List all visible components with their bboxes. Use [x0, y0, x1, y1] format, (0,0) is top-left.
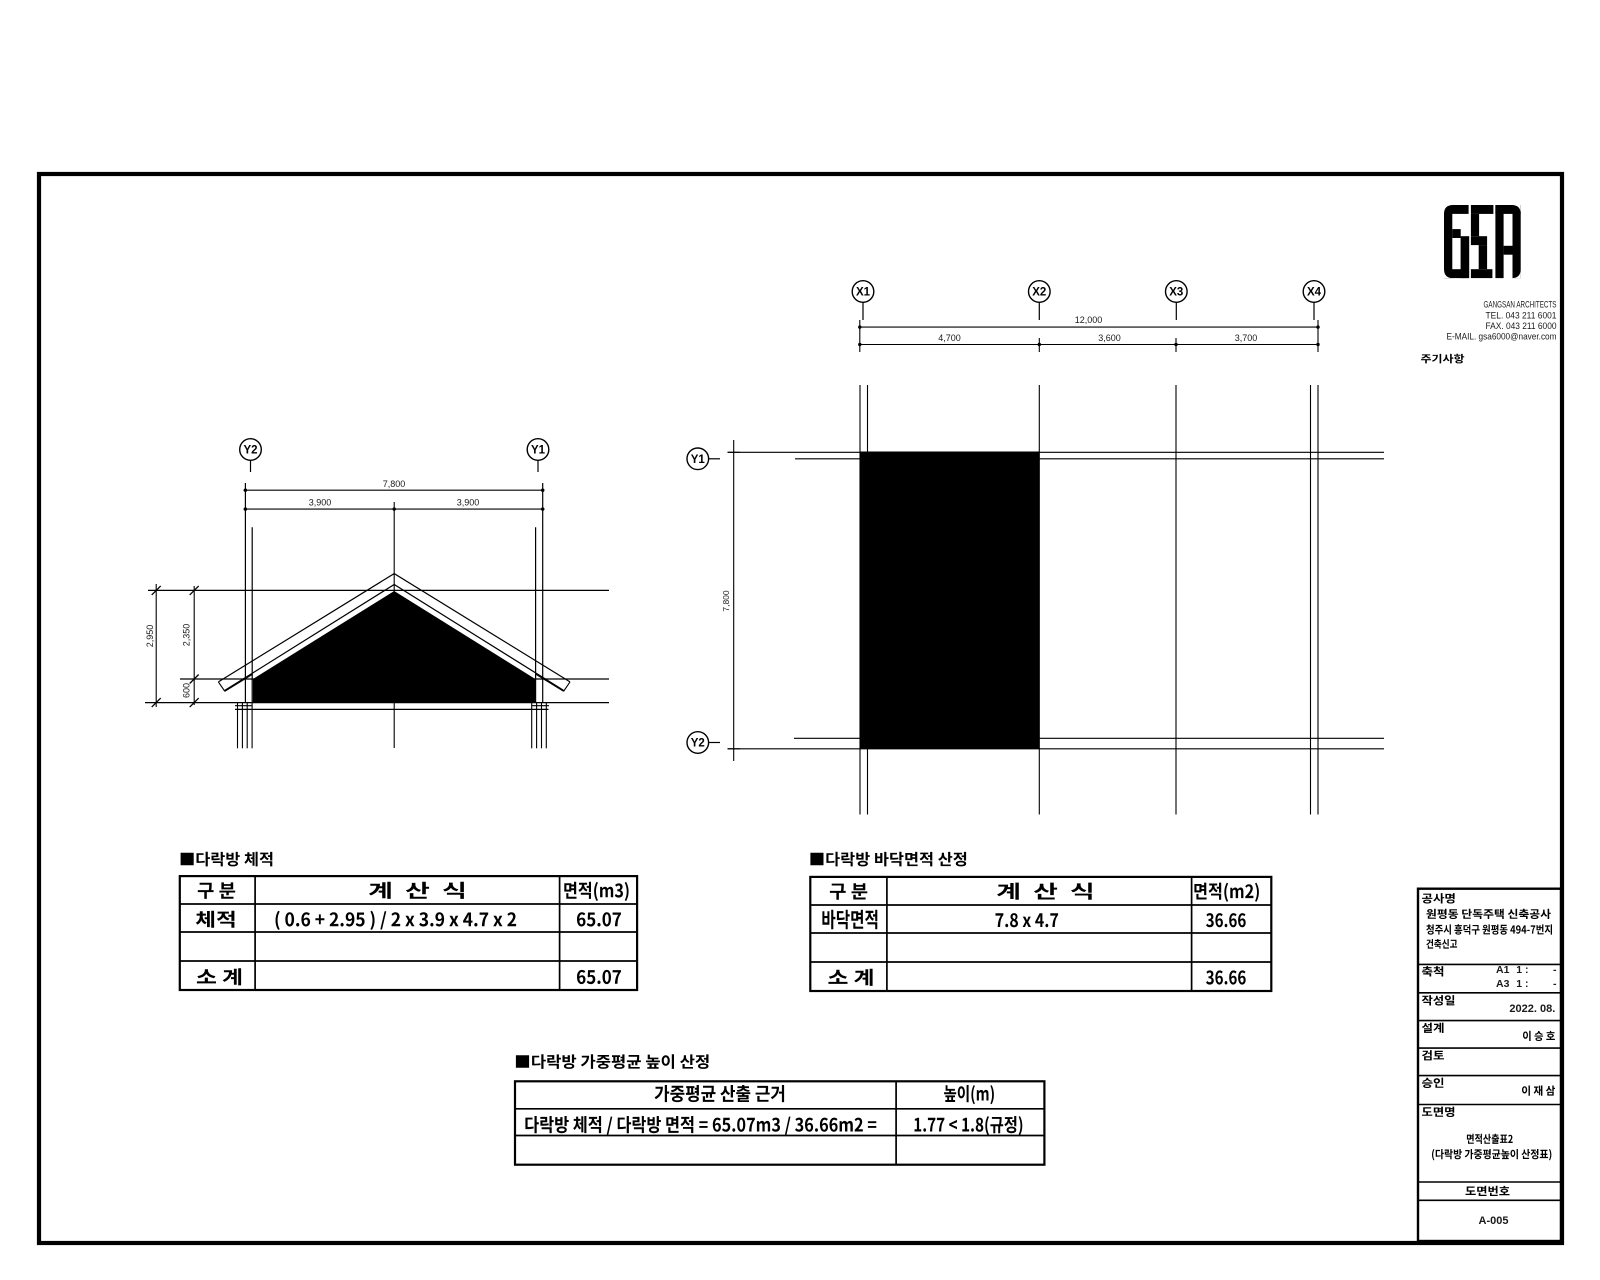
svg-text:12,000: 12,000	[1075, 315, 1103, 325]
svg-text:X4: X4	[1307, 287, 1322, 299]
svg-text:2,950: 2,950	[145, 625, 155, 648]
svg-text:-: -	[1553, 964, 1557, 976]
svg-text:GANGSAN ARCHITECTS: GANGSAN ARCHITECTS	[1484, 300, 1557, 310]
svg-text:4,700: 4,700	[938, 333, 961, 343]
svg-text:2,350: 2,350	[181, 624, 191, 647]
svg-text:600: 600	[182, 683, 192, 698]
svg-text:7,800: 7,800	[721, 590, 731, 612]
svg-text:TEL. 043 211 6001: TEL. 043 211 6001	[1486, 310, 1557, 321]
svg-text:3,600: 3,600	[1098, 333, 1121, 343]
svg-text:E-MAIL. gsa6000@naver.com: E-MAIL. gsa6000@naver.com	[1447, 332, 1557, 343]
svg-text:-: -	[1553, 978, 1557, 990]
svg-text:1 :: 1 :	[1516, 964, 1528, 976]
svg-text:3,900: 3,900	[309, 498, 332, 508]
svg-text:Y1: Y1	[531, 445, 546, 457]
svg-text:Y2: Y2	[691, 738, 705, 750]
svg-text:A3: A3	[1496, 978, 1510, 990]
svg-text:7,800: 7,800	[383, 479, 406, 489]
svg-text:1 :: 1 :	[1516, 978, 1528, 990]
svg-text:Y1: Y1	[691, 454, 706, 466]
svg-text:X3: X3	[1169, 287, 1183, 299]
svg-text:A-005: A-005	[1479, 1215, 1509, 1227]
svg-text:Y2: Y2	[243, 445, 257, 457]
svg-text:X1: X1	[856, 287, 871, 299]
svg-text:3,900: 3,900	[457, 498, 480, 508]
svg-text:FAX. 043 211 6000: FAX. 043 211 6000	[1486, 321, 1557, 332]
svg-text:X2: X2	[1032, 287, 1046, 299]
svg-text:3,700: 3,700	[1235, 333, 1258, 343]
svg-text:A1: A1	[1496, 964, 1510, 976]
svg-text:2022. 08.: 2022. 08.	[1509, 1003, 1555, 1015]
